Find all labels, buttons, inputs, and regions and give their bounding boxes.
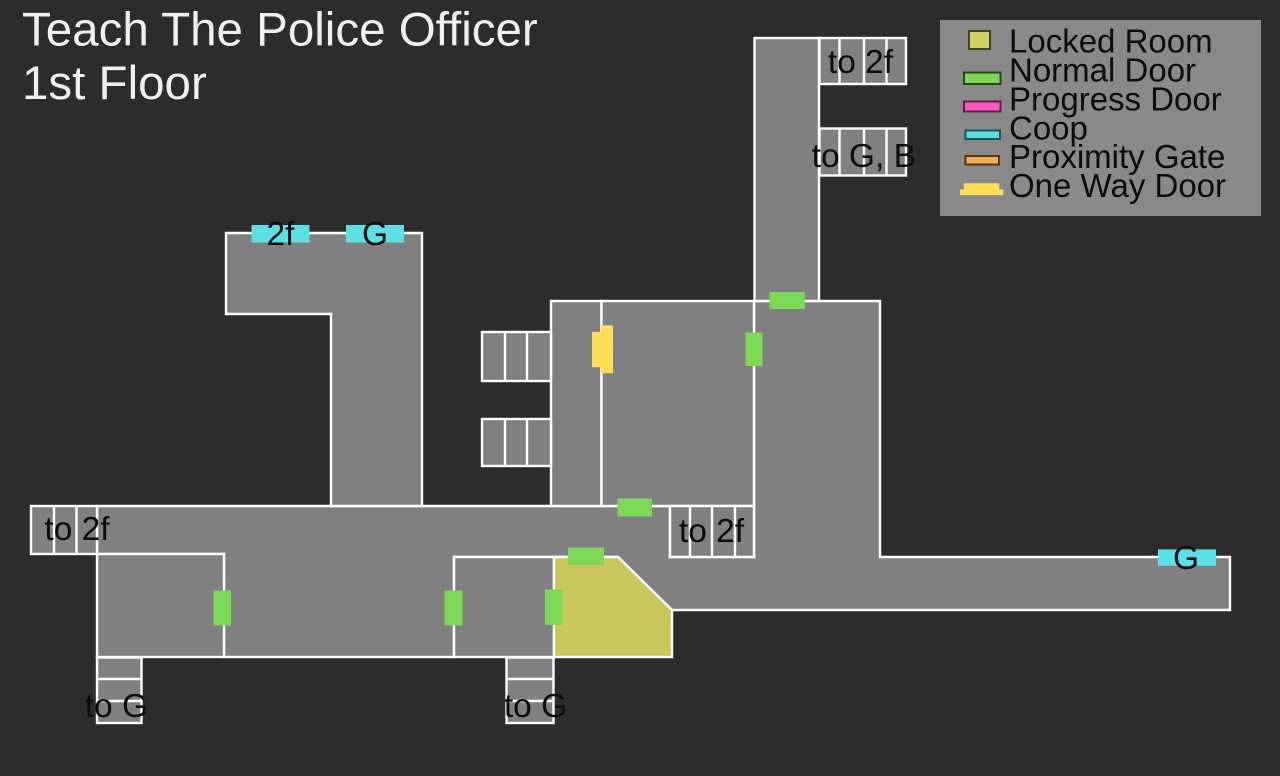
svg-text:to G: to G	[85, 688, 148, 725]
svg-text:One Way Door: One Way Door	[1009, 167, 1226, 204]
svg-text:to G, B: to G, B	[812, 138, 916, 175]
svg-text:G: G	[1173, 540, 1199, 577]
svg-text:to G: to G	[504, 688, 567, 725]
svg-text:to 2f: to 2f	[44, 511, 110, 548]
svg-text:to 2f: to 2f	[828, 44, 894, 81]
svg-text:Teach The Police Officer: Teach The Police Officer	[22, 4, 538, 57]
svg-text:2f: 2f	[267, 216, 296, 253]
svg-text:to 2f: to 2f	[679, 513, 745, 550]
svg-text:G: G	[362, 216, 388, 253]
svg-text:1st Floor: 1st Floor	[22, 57, 207, 110]
